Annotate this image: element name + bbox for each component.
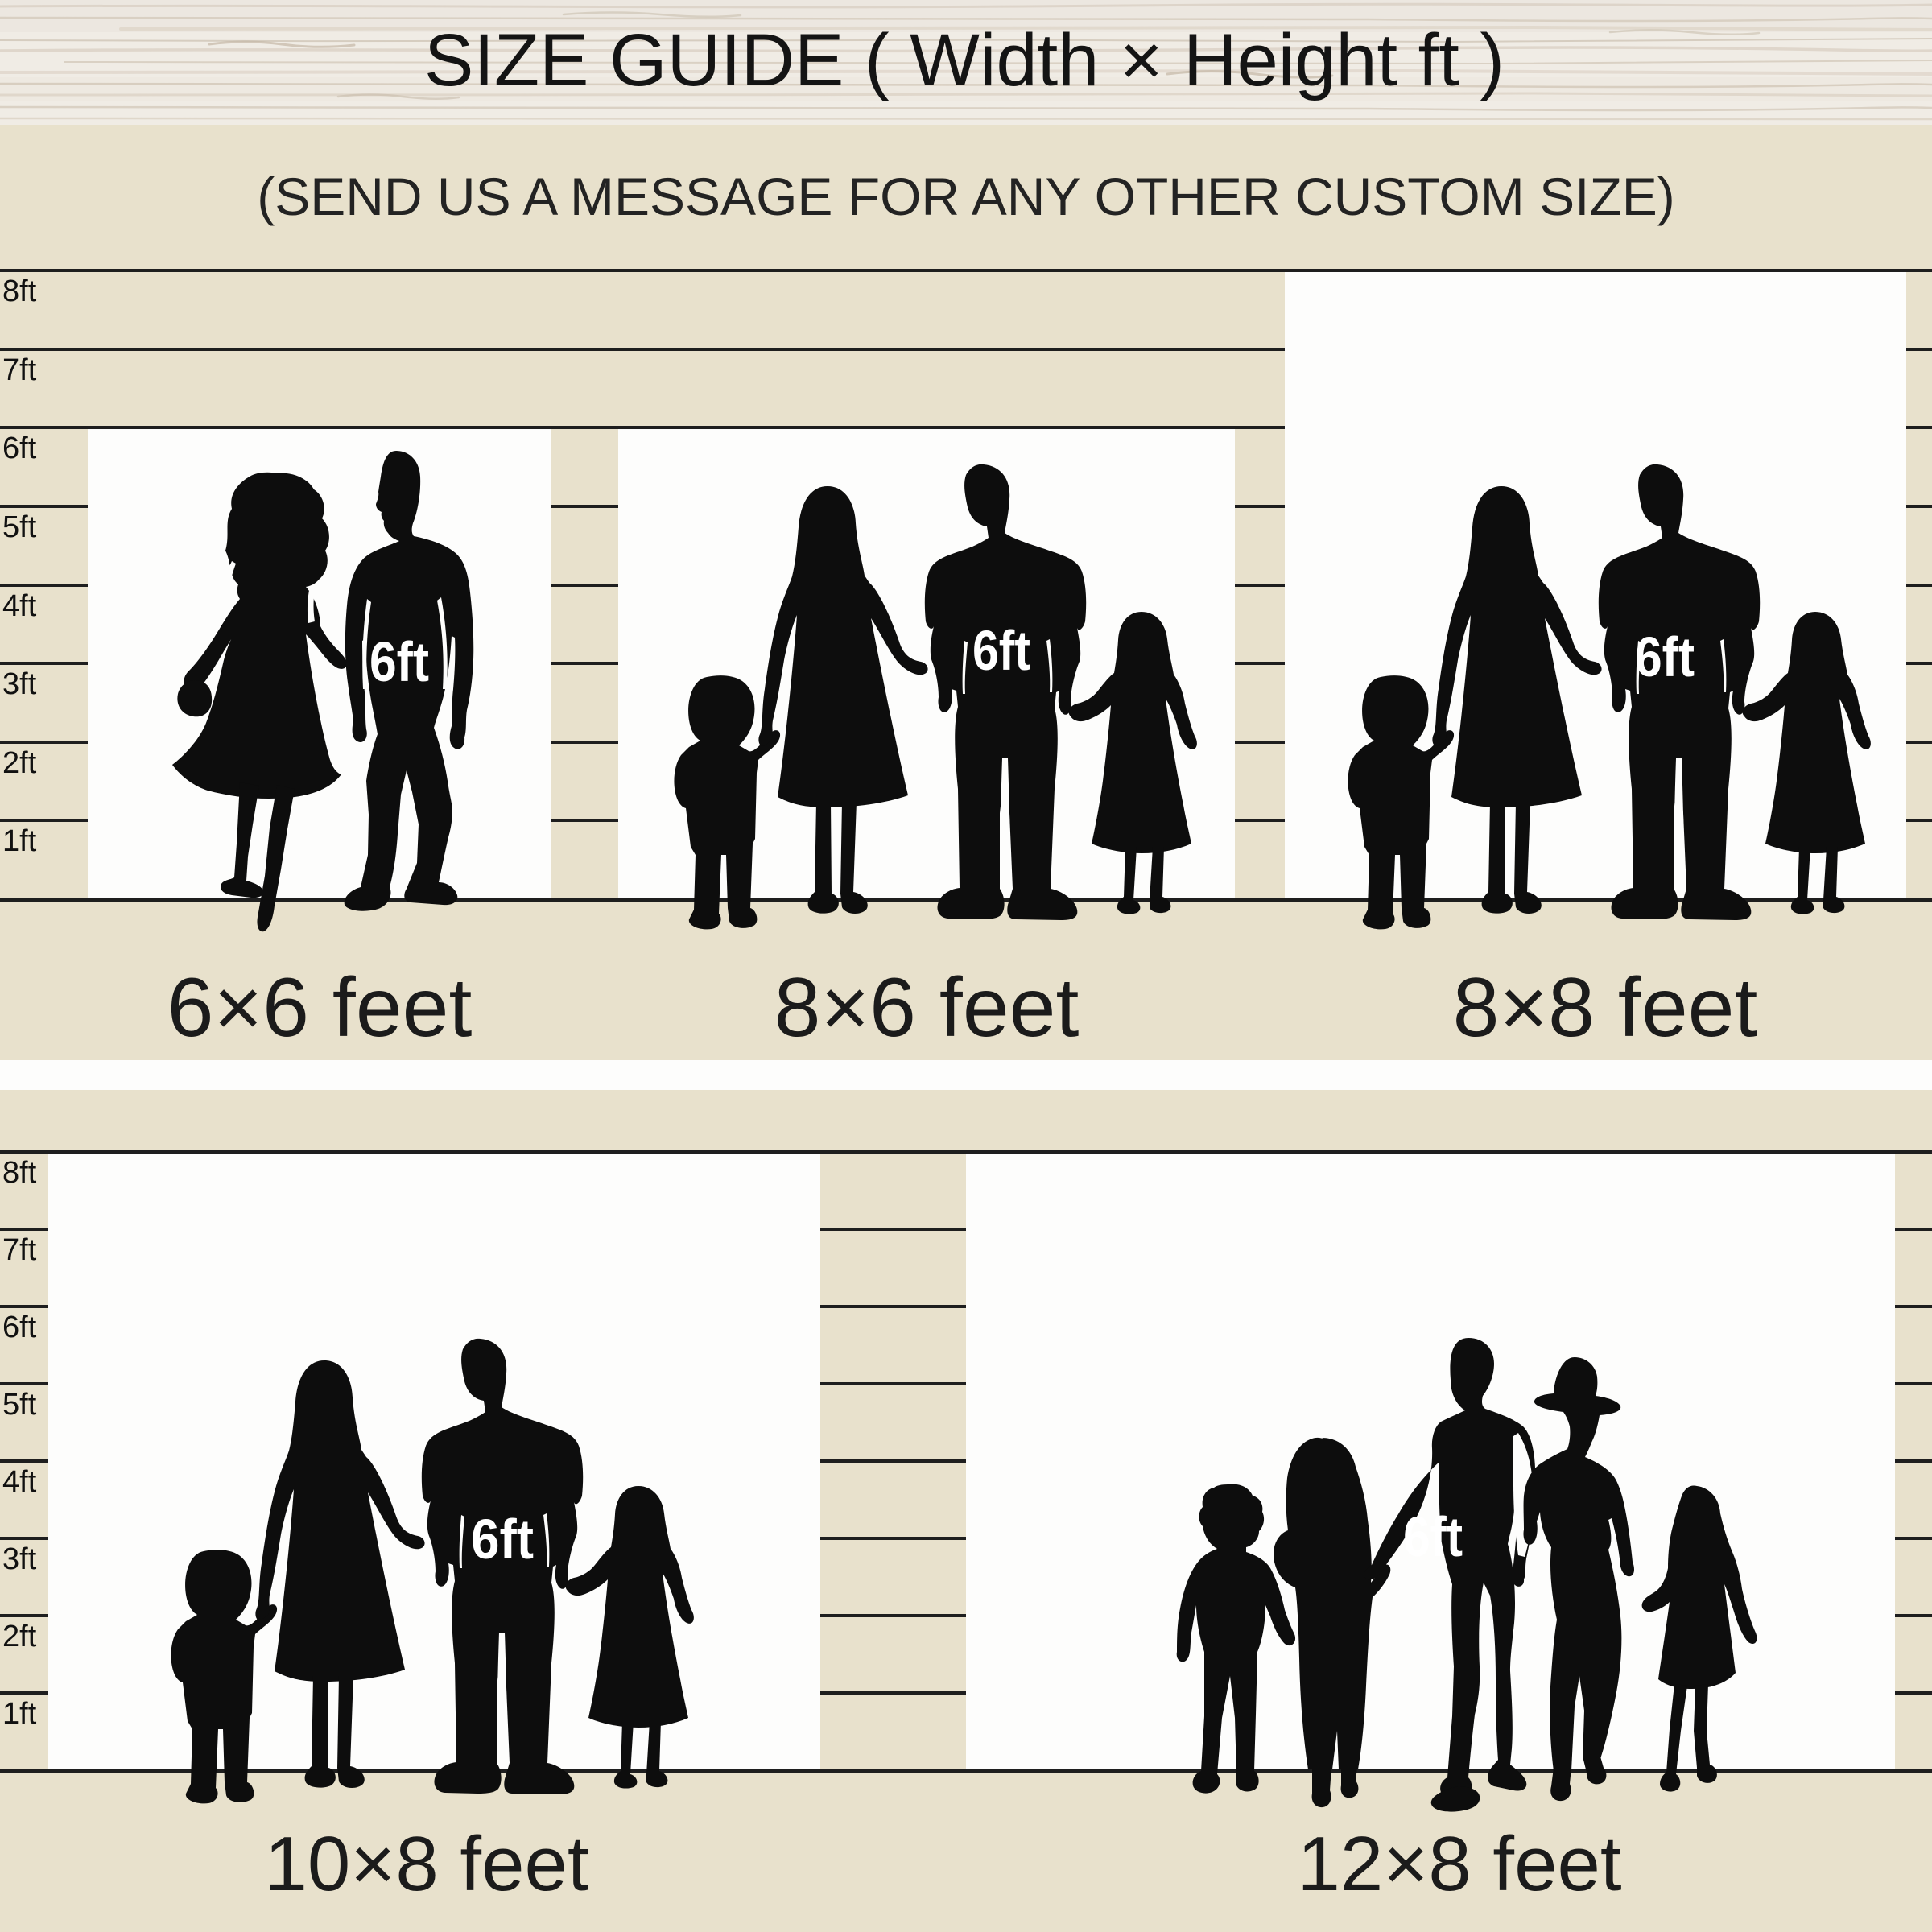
svg-text:5ft: 5ft <box>2 510 37 544</box>
svg-text:1ft: 1ft <box>2 824 37 858</box>
svg-text:4ft: 4ft <box>2 589 37 623</box>
svg-text:3ft: 3ft <box>2 667 37 701</box>
svg-text:(SEND US A MESSAGE FOR ANY OTH: (SEND US A MESSAGE FOR ANY OTHER CUSTOM … <box>257 167 1675 226</box>
svg-text:1ft: 1ft <box>2 1697 37 1731</box>
svg-text:6ft: 6ft <box>2 431 37 465</box>
svg-text:6ft: 6ft <box>1403 1505 1463 1568</box>
svg-text:6ft: 6ft <box>1635 625 1695 688</box>
svg-text:3ft: 3ft <box>2 1542 37 1576</box>
svg-text:10×8 feet: 10×8 feet <box>264 1821 588 1907</box>
svg-text:6ft: 6ft <box>471 1508 534 1571</box>
svg-text:7ft: 7ft <box>2 1233 37 1267</box>
svg-text:8×8 feet: 8×8 feet <box>1453 961 1758 1055</box>
svg-text:5ft: 5ft <box>2 1388 37 1422</box>
svg-text:7ft: 7ft <box>2 353 37 387</box>
svg-text:8ft: 8ft <box>2 1156 37 1190</box>
svg-text:6ft: 6ft <box>369 630 429 693</box>
svg-text:12×8 feet: 12×8 feet <box>1297 1821 1621 1907</box>
svg-text:SIZE GUIDE ( Width × Height ft: SIZE GUIDE ( Width × Height ft ) <box>424 19 1505 101</box>
svg-text:8×6 feet: 8×6 feet <box>774 961 1080 1055</box>
svg-text:4ft: 4ft <box>2 1465 37 1499</box>
svg-text:2ft: 2ft <box>2 746 37 780</box>
svg-text:6ft: 6ft <box>972 619 1030 682</box>
svg-text:2ft: 2ft <box>2 1620 37 1653</box>
svg-text:8ft: 8ft <box>2 275 37 308</box>
svg-text:6×6 feet: 6×6 feet <box>167 961 473 1055</box>
svg-text:6ft: 6ft <box>2 1311 37 1344</box>
